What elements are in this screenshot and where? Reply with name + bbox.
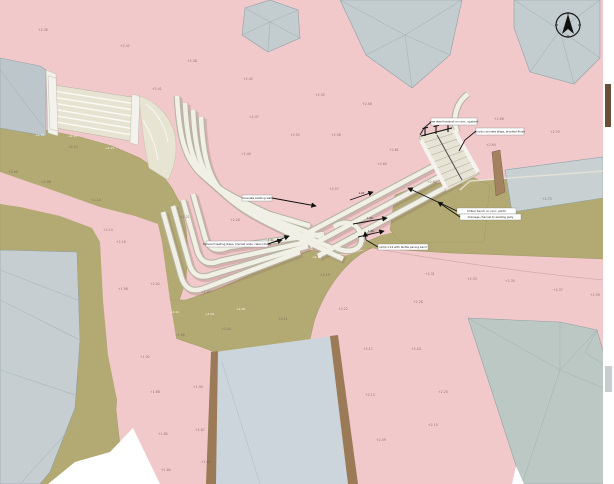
spot-elevation: +2.60	[377, 162, 387, 166]
spot-elevation: +2.66	[494, 117, 504, 121]
annotation-text: in-situ concrete steps, brushed finish	[475, 130, 525, 134]
spot-elevation: +2.15	[428, 423, 438, 427]
spot-elevation: +2.26	[230, 218, 240, 222]
water-channel	[206, 335, 358, 484]
spot-elevation: +2.08	[41, 180, 51, 184]
white-spot-mark: +2.02	[170, 310, 179, 314]
spot-elevation: +1.98	[118, 287, 128, 291]
spot-elevation: +2.33	[467, 277, 477, 281]
spot-elevation: +2.58	[362, 102, 372, 106]
spot-elevation: +2.04	[221, 327, 231, 331]
spot-elevation: +2.07	[201, 290, 211, 294]
spot-elevation: +1.92	[140, 355, 150, 359]
spot-elevation: +2.14	[103, 228, 113, 232]
spot-elevation: +2.45	[243, 77, 253, 81]
white-spot-mark: +2.12	[68, 134, 77, 138]
spot-elevation: +1.88	[150, 390, 160, 394]
annotation-text: ramp 1:12 with tactile paving band	[379, 245, 427, 249]
spot-elevation: +2.57	[329, 187, 339, 191]
spot-elevation: +2.62	[427, 180, 437, 184]
spot-elevation: +2.13	[365, 393, 375, 397]
white-spot-mark: +2.06	[236, 307, 245, 311]
spot-elevation: +2.09	[376, 438, 386, 442]
annotation-text: terraced seating steps, precast units, c…	[203, 242, 271, 246]
spot-elevation: +2.42	[120, 44, 130, 48]
white-spot-mark: +2.10	[35, 133, 44, 137]
ramp-cap-right	[130, 94, 140, 145]
spot-elevation: +2.49	[241, 152, 251, 156]
spot-elevation: +2.36	[38, 28, 48, 32]
spot-elevation: +2.10	[91, 198, 101, 202]
spot-elevation: +1.96	[175, 333, 185, 337]
annotation-text: new steel handrail on conc. upstand	[430, 120, 479, 124]
white-spot-mark: +2.18	[312, 255, 321, 259]
spot-elevation: +2.52	[290, 133, 300, 137]
spot-elevation: +2.17	[363, 347, 373, 351]
spot-elevation: +2.24	[411, 347, 421, 351]
margin-gray-chip	[605, 366, 612, 392]
slope-label: 1:20	[359, 191, 365, 195]
page-margin-right	[603, 0, 614, 484]
spot-elevation: +1.87	[195, 428, 205, 432]
slope-label: 1:20	[368, 229, 374, 233]
spot-elevation: +1.82	[201, 460, 211, 464]
site-plan-canvas: +2.36+2.42+2.38+2.45+2.41+2.47+2.52+2.49…	[0, 0, 614, 484]
spot-elevation: +2.38	[187, 59, 197, 63]
spot-elevation: +2.37	[553, 288, 563, 292]
spot-elevation: +2.41	[152, 87, 162, 91]
spot-elevation: +2.64	[486, 143, 496, 147]
white-spot-mark: +2.15	[105, 146, 114, 150]
spot-elevation: +2.21	[180, 215, 190, 219]
spot-elevation: +2.16	[116, 240, 126, 244]
spot-elevation: +2.70	[550, 130, 560, 134]
spot-elevation: +2.20	[438, 390, 448, 394]
spot-elevation: +1.85	[158, 432, 168, 436]
site-plan-page: +2.36+2.42+2.38+2.45+2.41+2.47+2.52+2.49…	[0, 0, 614, 484]
spot-elevation: +2.55	[315, 93, 325, 97]
spot-elevation: +2.11	[278, 317, 288, 321]
spot-elevation: +2.28	[413, 300, 423, 304]
margin-brown-bar	[605, 84, 611, 127]
annotation-text: renovate existing wall	[242, 196, 272, 200]
spot-elevation: +2.73	[542, 197, 552, 201]
spot-elevation: +2.05	[8, 170, 18, 174]
spot-elevation: +2.61	[389, 148, 399, 152]
spot-elevation: +2.56	[331, 133, 341, 137]
white-spot-mark: +2.04	[205, 312, 214, 316]
spot-elevation: +1.80	[161, 468, 171, 472]
spot-elevation: +2.19	[320, 273, 330, 277]
spot-elevation: +2.02	[150, 282, 160, 286]
white-spot-mark: +2.20	[332, 253, 341, 257]
annotation-text: timber bench on conc. plinth	[467, 209, 506, 213]
spot-elevation: +2.31	[425, 272, 435, 276]
spot-elevation: +2.35	[505, 279, 515, 283]
spot-elevation: +2.39	[590, 293, 600, 297]
spot-elevation: +1.90	[193, 385, 203, 389]
annotation-text: drainage channel to existing gully	[468, 215, 514, 219]
spot-elevation: +2.47	[249, 115, 259, 119]
spot-elevation: +2.12	[68, 145, 78, 149]
slope-label: 1:20	[367, 216, 373, 220]
spot-elevation: +2.22	[338, 307, 348, 311]
